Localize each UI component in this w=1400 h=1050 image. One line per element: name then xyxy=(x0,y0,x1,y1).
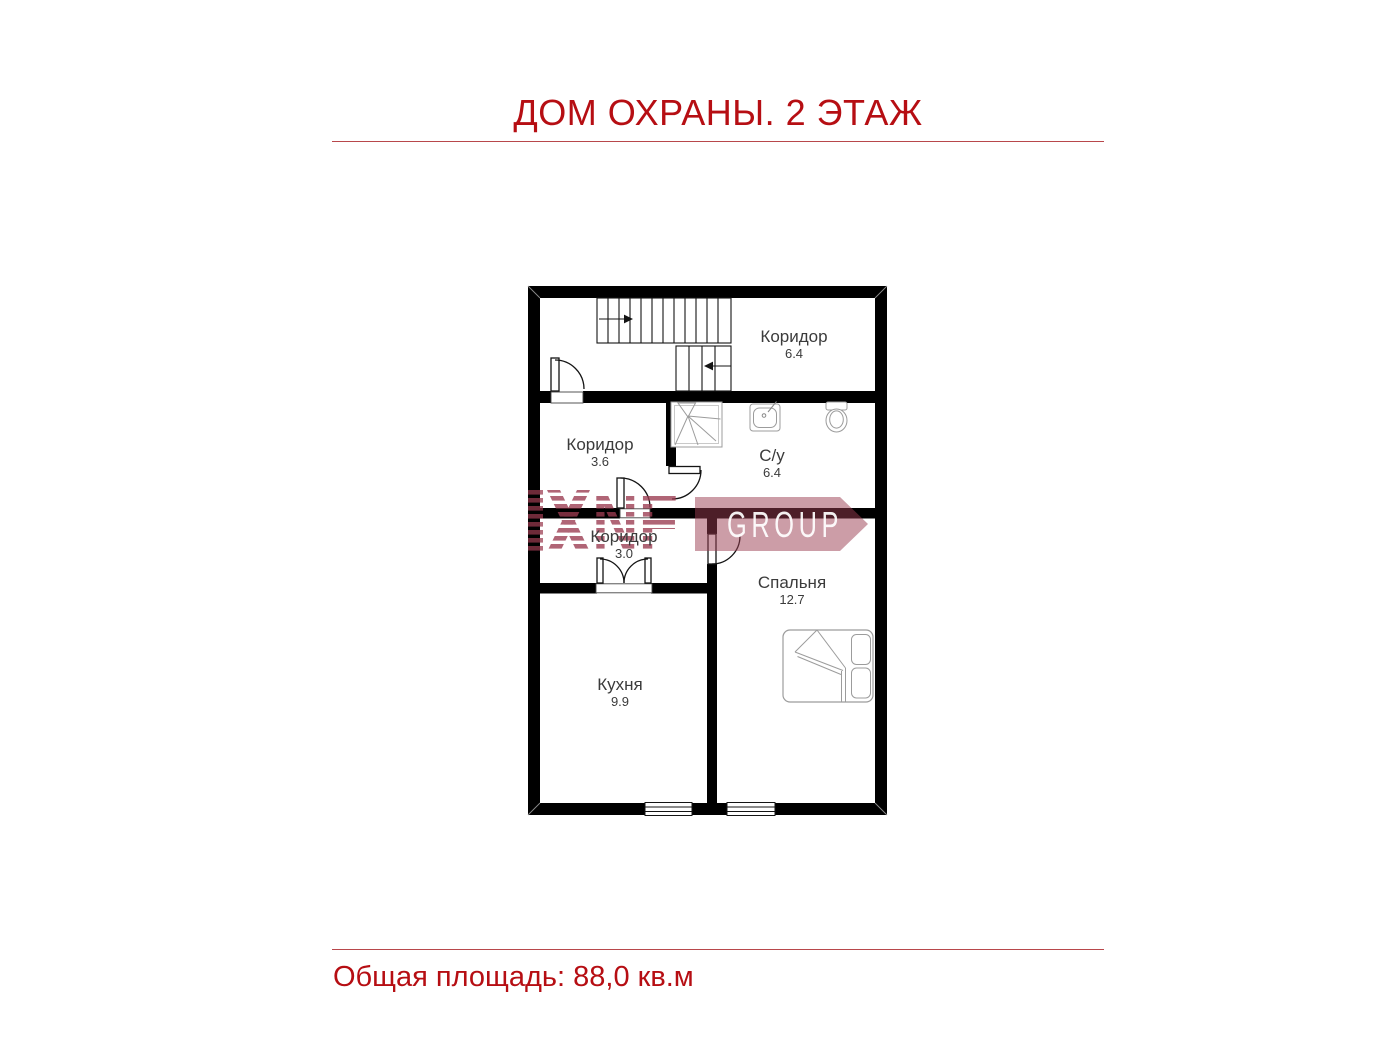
room-label-kitchen: Кухня 9.9 xyxy=(597,675,643,709)
room-name: Коридор xyxy=(590,527,657,546)
room-area: 6.4 xyxy=(760,346,827,361)
page-title: ДОМ ОХРАНЫ. 2 ЭТАЖ xyxy=(332,94,1104,132)
double-bed-icon xyxy=(783,630,873,702)
bathroom-fixtures xyxy=(671,402,847,448)
room-label-corridor-top: Коридор 6.4 xyxy=(760,327,827,361)
sink-icon xyxy=(750,402,780,432)
watermark-banner-text: GROUP xyxy=(727,504,843,545)
door-leaf-entry xyxy=(551,358,559,391)
window-bedroom xyxy=(727,803,775,816)
watermark: NF GROUP xyxy=(518,478,880,562)
total-area-text: Общая площадь: 88,0 кв.м xyxy=(333,961,694,994)
room-name: Спальня xyxy=(758,573,826,592)
room-area: 9.9 xyxy=(597,694,643,709)
room-area: 12.7 xyxy=(758,592,826,607)
room-name: Коридор xyxy=(566,435,633,454)
stair-run-lower xyxy=(676,346,731,391)
watermark-bars-icon xyxy=(528,490,543,551)
room-label-corridor-small: Коридор 3.0 xyxy=(590,527,657,561)
room-name: С/у xyxy=(759,446,785,465)
door-leaf-bathroom xyxy=(669,467,700,474)
room-area: 3.6 xyxy=(566,454,633,469)
staircase xyxy=(597,298,731,391)
room-label-corridor-mid: Коридор 3.6 xyxy=(566,435,633,469)
toilet-icon xyxy=(826,402,847,432)
page-canvas: ДОМ ОХРАНЫ. 2 ЭТАЖ xyxy=(0,0,1400,1050)
shower-icon xyxy=(671,402,722,447)
stair-run-upper xyxy=(597,298,731,343)
room-area: 6.4 xyxy=(759,465,785,480)
room-label-bedroom: Спальня 12.7 xyxy=(758,573,826,607)
title-underline xyxy=(332,141,1104,142)
room-name: Коридор xyxy=(760,327,827,346)
watermark-x-mark-icon xyxy=(547,490,590,552)
window-kitchen xyxy=(645,803,692,816)
room-area: 3.0 xyxy=(590,546,657,561)
footer-rule xyxy=(332,949,1104,950)
room-name: Кухня xyxy=(597,675,643,694)
room-label-bathroom: С/у 6.4 xyxy=(759,446,785,480)
